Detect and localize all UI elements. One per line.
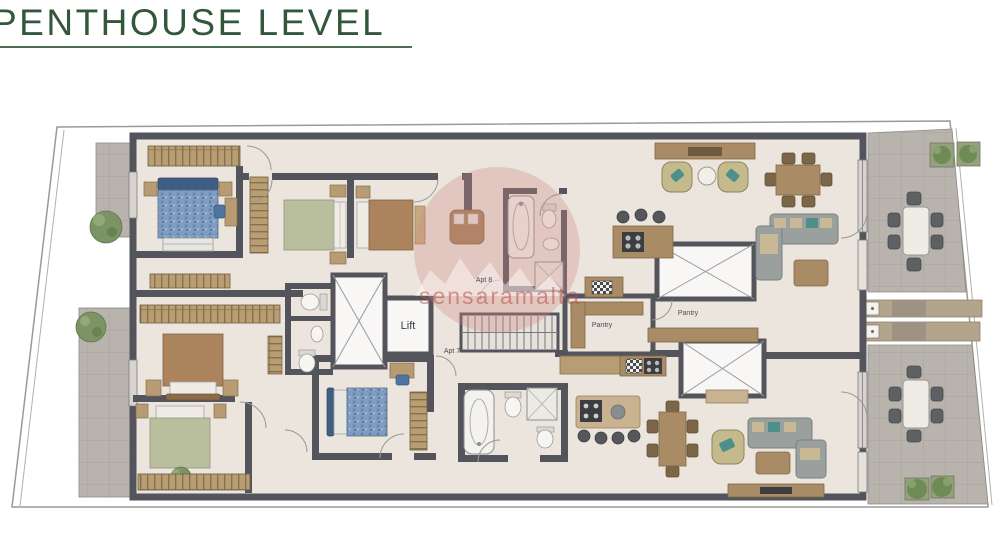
wall xyxy=(285,283,291,375)
bed-double-blue xyxy=(158,178,218,251)
wardrobe-vertical xyxy=(250,177,268,253)
wardrobe xyxy=(140,305,280,323)
terrace-door-lower xyxy=(858,452,867,492)
pantry-mid-counter xyxy=(648,328,758,342)
wardrobe xyxy=(138,474,250,490)
wardrobe xyxy=(150,274,230,288)
bar-stool xyxy=(628,430,640,442)
wall xyxy=(458,455,508,462)
bed-single-green xyxy=(284,200,346,250)
bar-stool xyxy=(612,432,624,444)
bar-stool xyxy=(653,211,665,223)
nightstand xyxy=(136,404,148,418)
wall xyxy=(133,251,236,258)
toilet xyxy=(301,294,319,310)
toilet xyxy=(320,294,327,310)
apt7-label: Apt 7 xyxy=(434,348,470,355)
desk xyxy=(225,198,237,226)
wall xyxy=(762,352,866,359)
wall xyxy=(347,180,354,258)
plant-bush-left-upper xyxy=(90,211,122,243)
wall xyxy=(133,290,303,297)
round-side-table xyxy=(698,167,716,185)
light-shaft-bottom xyxy=(681,341,764,396)
nightstand xyxy=(356,186,370,198)
pantry-mid-label: Pantry xyxy=(662,310,714,317)
planter-bench-lower xyxy=(862,322,980,341)
bar-stool xyxy=(635,209,647,221)
bed-double-blue2 xyxy=(327,388,387,436)
wall xyxy=(427,362,434,412)
wall xyxy=(312,355,319,460)
wardrobe-vertical xyxy=(410,392,427,450)
desk-chair xyxy=(214,205,225,218)
tv-unit xyxy=(655,143,755,159)
watermark-text: sensaramalta xyxy=(403,283,597,310)
floorplan-page: PENTHOUSE LEVEL Lift Apt 8 Apt 7 Pantry … xyxy=(0,0,1000,550)
wall xyxy=(285,316,333,321)
coffee-table xyxy=(794,260,828,286)
toilet xyxy=(505,392,521,417)
kitchen-counter xyxy=(560,356,622,374)
wall xyxy=(272,173,438,180)
tall-cabinet xyxy=(268,336,282,374)
stove-icon xyxy=(622,232,644,252)
bathtub xyxy=(464,390,494,454)
outdoor-table xyxy=(903,380,929,428)
nightstand xyxy=(144,182,157,196)
bed-double-brown xyxy=(163,334,223,400)
toilet xyxy=(299,354,315,372)
wall xyxy=(285,283,333,289)
stove-icon xyxy=(644,358,662,374)
terrace-door-upper xyxy=(858,240,867,290)
pantry-left-label: Pantry xyxy=(578,322,626,329)
planter-bench-upper xyxy=(862,300,982,317)
coffee-table xyxy=(756,452,790,474)
nightstand xyxy=(330,185,346,197)
wall xyxy=(243,173,249,180)
title-underline xyxy=(0,46,412,48)
wardrobe xyxy=(148,146,240,166)
tv-unit xyxy=(728,484,824,497)
bed-double-green xyxy=(150,406,210,468)
wall xyxy=(540,455,568,462)
nightstand xyxy=(330,252,346,264)
lift-label: Lift xyxy=(385,320,431,332)
wall xyxy=(561,383,568,462)
sink xyxy=(311,326,323,342)
sink xyxy=(537,427,554,448)
outdoor-table xyxy=(903,207,929,255)
bar-stool xyxy=(595,432,607,444)
bar-stool xyxy=(578,430,590,442)
wall xyxy=(559,188,567,194)
armchair xyxy=(718,162,748,192)
plant-bush-left-lower xyxy=(76,312,106,342)
bar-stool xyxy=(617,211,629,223)
desk-chair xyxy=(396,375,409,385)
core-wc-upper xyxy=(301,294,327,310)
sideboard xyxy=(706,390,748,403)
sink-icon xyxy=(626,359,642,373)
shower xyxy=(527,388,557,420)
nightstand xyxy=(146,380,161,396)
stair-void xyxy=(333,275,385,367)
page-title: PENTHOUSE LEVEL xyxy=(0,2,385,44)
nightstand xyxy=(223,380,238,396)
window-left-upper xyxy=(129,172,137,218)
armchair xyxy=(712,430,744,464)
nightstand xyxy=(219,182,232,196)
wall xyxy=(414,453,436,460)
armchair xyxy=(662,162,692,192)
nightstand xyxy=(214,404,226,418)
kitchen-island xyxy=(576,396,640,428)
apt8-kitchen xyxy=(613,209,673,258)
floorplan-drawing xyxy=(0,0,1000,550)
